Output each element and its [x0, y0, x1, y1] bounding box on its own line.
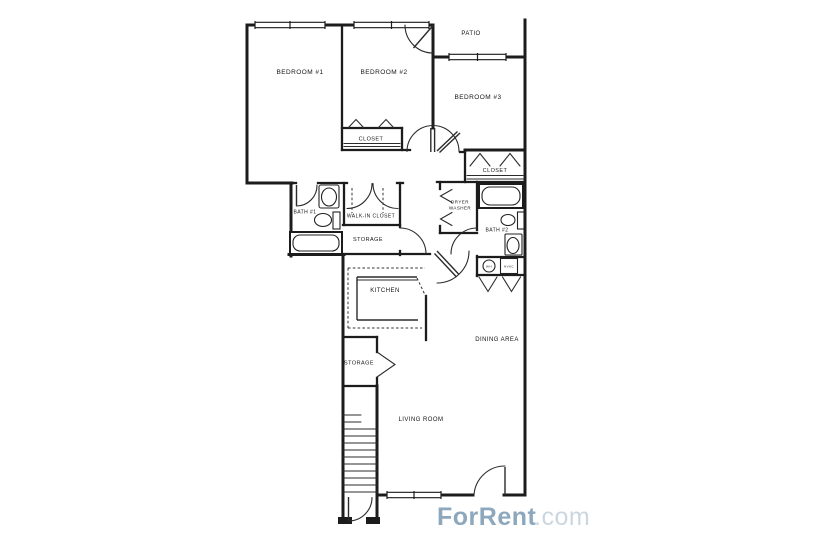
room-label-walk-in-closet: WALK-IN CLOSET [347, 214, 395, 220]
bath2-tub-icon [479, 184, 523, 208]
room-label-storage-hall: STORAGE [353, 237, 383, 243]
walkin-closet-rods [352, 188, 383, 213]
watermark: ForRent .com [437, 503, 590, 531]
walkin-closet-doors [347, 184, 398, 209]
room-label-bath1: BATH #1 [293, 210, 316, 216]
storage-entry-door [377, 352, 395, 377]
room-label-closet-bedroom3: CLOSET [483, 168, 508, 174]
staircase [343, 415, 377, 492]
bath1-door [297, 185, 318, 206]
room-labels: BEDROOM #1 BEDROOM #2 BEDROOM #3 PATIO C… [276, 31, 518, 423]
room-label-dining-area: DINING AREA [475, 337, 519, 343]
dining-entry-door [435, 251, 470, 283]
water-heater-label: WH [486, 265, 492, 269]
window-bedroom1 [255, 21, 325, 29]
hall-bedroom-doors [407, 126, 460, 153]
patio-door [405, 25, 433, 53]
watermark-suffix: .com [534, 503, 590, 531]
watermark-brand: ForRent [437, 503, 537, 531]
kitchen-counters [348, 268, 426, 328]
bath2-toilet-icon [505, 234, 522, 255]
entry-wall-stub-right [366, 517, 380, 524]
room-label-bedroom3: BEDROOM #3 [454, 94, 501, 101]
room-label-storage-entry: STORAGE [344, 361, 374, 367]
window-bedroom2 [354, 21, 429, 29]
room-label-dryer: DRYER [451, 200, 469, 205]
room-label-living-room: LIVING ROOM [399, 417, 444, 423]
floor-plan-page: WH HVAC BEDROOM #1 BEDROOM #2 BEDROOM #3… [0, 0, 820, 550]
bath1-sink-icon [315, 212, 341, 229]
bedroom3-closet-doors [467, 154, 523, 180]
bath1-toilet-icon [319, 185, 339, 208]
utility-closet-doors [479, 277, 521, 292]
room-label-washer: WASHER [449, 206, 472, 211]
room-label-bath2: BATH #2 [485, 228, 508, 234]
room-label-closet-bedroom2: CLOSET [359, 137, 384, 143]
room-label-bedroom2: BEDROOM #2 [360, 69, 407, 76]
room-label-patio: PATIO [461, 31, 480, 37]
bath2-sink-icon [501, 212, 524, 229]
room-label-bedroom1: BEDROOM #1 [276, 69, 323, 76]
window-living-room [387, 491, 441, 499]
water-heater-icon: WH [483, 260, 495, 272]
bath1-tub-icon [290, 232, 342, 254]
storage-hall-door [400, 228, 426, 254]
hvac-label: HVAC [504, 265, 514, 269]
floor-plan: WH HVAC BEDROOM #1 BEDROOM #2 BEDROOM #3… [0, 0, 820, 550]
hvac-icon: HVAC [501, 259, 518, 274]
room-label-kitchen: KITCHEN [370, 288, 400, 294]
window-bedroom3 [449, 53, 506, 61]
living-room-door [474, 466, 505, 495]
